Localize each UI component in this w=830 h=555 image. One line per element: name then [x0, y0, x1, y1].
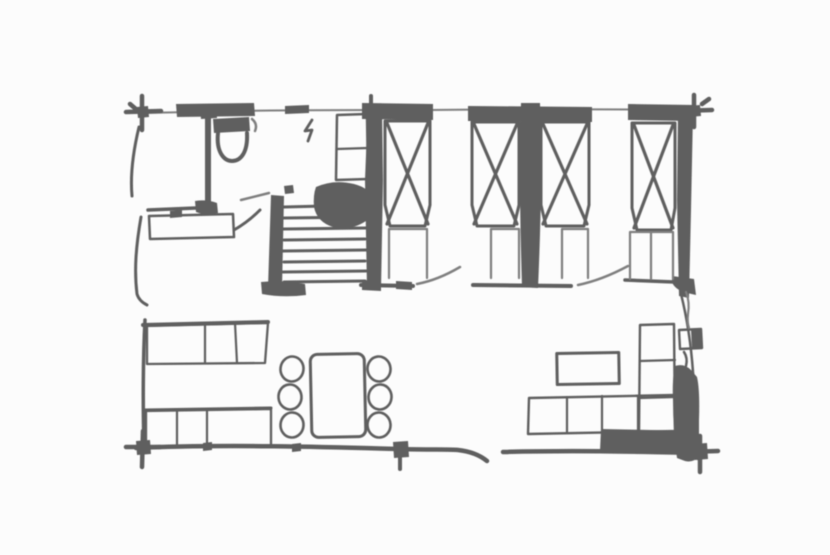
door-swing [417, 267, 460, 284]
bed-cross [387, 123, 428, 224]
stair-rail [268, 195, 284, 289]
strip-wall [473, 285, 571, 286]
bed-foot [630, 232, 673, 279]
bed-2 [472, 122, 519, 278]
partition-wall [677, 111, 693, 298]
sofa-shadow-bar [600, 429, 697, 453]
wall-squiggle [684, 352, 687, 366]
vanity-counter [149, 210, 234, 239]
vanity-tick [170, 210, 182, 218]
bed-4 [630, 123, 675, 279]
chaise-outline [639, 324, 675, 433]
bench-leg-tick [203, 442, 212, 451]
stair-rail-cap [261, 281, 306, 296]
dining-set [277, 353, 392, 438]
bed-cross [634, 125, 673, 228]
wall-junction [200, 106, 217, 119]
bench-divider [205, 323, 237, 363]
bench-outline [146, 409, 271, 448]
dining-chair [367, 383, 392, 410]
bench-outline [147, 323, 268, 364]
wall-box-fill [691, 329, 702, 348]
strip-wall [625, 280, 674, 282]
up-arrow-glyph [305, 120, 312, 141]
toilet-tick [252, 119, 256, 131]
vanity-outline [149, 214, 234, 239]
wall-post [393, 441, 409, 469]
wardrobe [336, 114, 368, 180]
bed-cross [543, 124, 587, 224]
bed-foot [562, 229, 588, 278]
coffee-table [557, 352, 620, 384]
small-square-dot [284, 185, 294, 194]
left-wall-sketch [136, 217, 147, 305]
corner-post [126, 96, 161, 130]
bed-header-wall [362, 103, 433, 120]
floor-plan-sketch [0, 0, 830, 555]
dining-chair [279, 412, 304, 439]
toilet-tank [213, 117, 250, 133]
door-swing [578, 266, 628, 285]
strip-wall-corner [672, 276, 696, 295]
bench-divider [177, 409, 207, 447]
chaise-divider [640, 360, 675, 398]
bathroom-wall [148, 208, 196, 210]
bench-back-wall [143, 320, 145, 447]
top-wall-thick-segment [285, 105, 309, 114]
wardrobe-divider [337, 148, 368, 149]
bed-1 [385, 121, 430, 278]
wardrobe-outline [336, 114, 368, 180]
floor-plan-canvas [0, 0, 830, 555]
dining-chair [366, 412, 391, 439]
toilet-bowl [218, 133, 247, 161]
door-swing [234, 210, 260, 230]
sofa-divider [567, 396, 638, 432]
bathroom [149, 117, 260, 239]
hall-and-stairs [261, 114, 373, 296]
lounge-corner [528, 292, 702, 461]
stair-treads [283, 205, 366, 282]
bed-cross [474, 124, 517, 224]
left-wall-sketch [131, 127, 139, 196]
living-dining-area [143, 292, 702, 461]
dining-chair [279, 355, 305, 383]
bed-foot [389, 229, 427, 278]
dining-table [310, 353, 366, 437]
toilet [213, 117, 256, 161]
bench-leg-tick [292, 443, 301, 452]
dining-chair [277, 383, 302, 410]
bench-seat-upper [143, 322, 268, 364]
hall-wall-line [241, 193, 269, 200]
partition-wall [520, 103, 541, 288]
bed-3 [541, 122, 589, 278]
bed-foot [491, 229, 519, 278]
strip-wall-blob [396, 281, 412, 290]
wall-junction [195, 200, 218, 214]
dining-chair [366, 355, 392, 383]
